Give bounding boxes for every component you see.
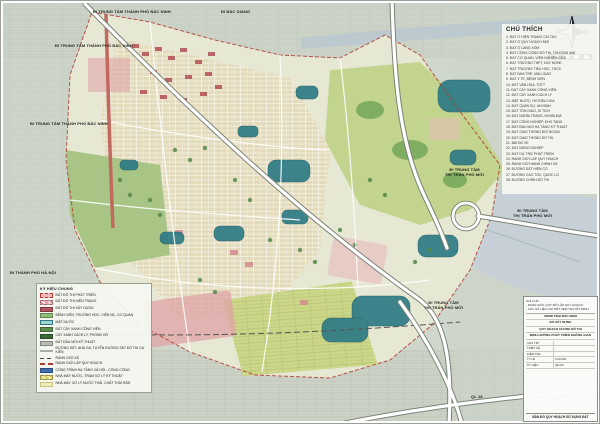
color-swatch — [40, 363, 53, 365]
legend-panel: CHÚ THÍCH 1. ĐẤT Ở HIỆN TRẠNG CẢI TẠO 2.… — [502, 24, 598, 194]
note-line: - CÁC SỐ LIỆU CHI TIẾT XEM THUYẾT MINH — [526, 307, 595, 311]
color-swatch — [40, 334, 53, 339]
color-swatch — [40, 327, 53, 332]
map-key-row: ĐẤT ĐÔ THỊ HIỆN TRẠNG — [40, 300, 148, 305]
map-key-label: ĐẤT ĐÔ THỊ HIỆN TRẠNG — [56, 300, 97, 304]
legend-item: 28. ĐƯỜNG CHÍNH ĐÔ THỊ — [506, 178, 594, 183]
map-direction-label: ĐI BẮC GIANG — [221, 10, 250, 15]
map-key-list: ĐẤT ĐÔ THỊ PHÁT TRIỂN ĐẤT ĐÔ THỊ HIỆN TR… — [40, 293, 148, 387]
map-key-row: NHÀ MÁY XỬ LÝ NƯỚC THẢI, CHẤT THẢI RẮN — [40, 382, 148, 387]
title-block: GHI CHÚ: - RANH GIỚI, QUY MÔ LẬP QUY HOẠ… — [523, 296, 598, 422]
map-direction-label: ĐI TRUNG TÂM THÀNH PHỐ BẮC NINH — [55, 44, 133, 49]
pair-key: TỶ LỆ — [526, 357, 554, 362]
map-key-label: ĐẤT ĐẦU MỐI KỸ THUẬT — [56, 341, 96, 345]
map-key-row: CÔNG TRÌNH HẠ TẦNG XÃ HỘI - CÔNG CỘNG — [40, 368, 148, 373]
map-key-row: MẶT NƯỚC — [40, 320, 148, 325]
map-key-label: ĐẤT ĐÔ THỊ PHÁT TRIỂN — [56, 294, 96, 298]
map-key-label: ĐẤT ĐÔ THỊ XÂY DỰNG — [56, 307, 94, 311]
map-direction-label: ĐI TRUNG TÂM THỊ TRẤN PHỐ MỚI — [445, 168, 484, 178]
drawing-title: BẢN ĐỒ QUY HOẠCH SỬ DỤNG ĐẤT — [526, 413, 595, 419]
map-key-label: CÔNG TRÌNH HẠ TẦNG XÃ HỘI - CÔNG CỘNG — [56, 369, 130, 373]
map-key-row: ĐẤT ĐÔ THỊ XÂY DỰNG — [40, 307, 148, 312]
legend-item-list: 1. ĐẤT Ở HIỆN TRẠNG CẢI TẠO 2. ĐẤT Ở QUY… — [506, 35, 594, 183]
map-direction-label: ĐI TRUNG TÂM THÀNH PHỐ BẮC NINH — [30, 122, 108, 127]
map-direction-label: ĐI TRUNG TÂM THỊ TRẤN PHỐ MỚI — [424, 301, 463, 311]
pair-value — [554, 341, 595, 346]
map-key-row: RANH GIỚI LẬP QUY HOẠCH — [40, 362, 148, 366]
color-swatch — [40, 375, 53, 380]
map-key-panel: KÝ HIỆU CHUNG ĐẤT ĐÔ THỊ PHÁT TRIỂN ĐẤT … — [36, 283, 152, 393]
map-key-row: CÂY XANH CÁCH LY, PHÒNG HỘ — [40, 334, 148, 339]
pair-key: KIỂM TRA — [526, 352, 554, 357]
color-swatch — [40, 368, 53, 373]
color-swatch — [40, 341, 53, 346]
map-key-label: ĐẤT CÂY XANH CÔNG VIÊN — [56, 328, 101, 332]
map-key-label: CÂY XANH CÁCH LY, PHÒNG HỘ — [56, 334, 109, 338]
map-key-label: BỆNH VIỆN, TRƯỜNG HỌC, VIỆN NC, CƠ QUAN — [56, 314, 134, 318]
title-block-pair: KÝ HIỆU QH-03 — [526, 363, 595, 369]
map-key-header: KÝ HIỆU CHUNG — [40, 287, 148, 291]
map-key-label: RANH GIỚI LẬP QUY HOẠCH — [56, 362, 103, 366]
pair-value: 1/10.000 — [554, 357, 595, 362]
title-block-rows: UBND TỈNH BẮC NINH SỞ XÂY DỰNG QUY HOẠCH… — [526, 313, 595, 340]
planning-map-page: ĐI TRUNG TÂM THÀNH PHỐ BẮC NINH ĐI BẮC G… — [0, 0, 600, 424]
map-key-label: ĐƯỜNG SẮT, NHÀ GA; TUYẾN ĐƯỜNG SẮT ĐÔ TH… — [56, 347, 149, 355]
map-key-label: RANH GIỚI XÃ — [56, 357, 79, 361]
pair-key: CHỦ TRÌ — [526, 341, 554, 346]
title-block-notes: GHI CHÚ: - RANH GIỚI, QUY MÔ LẬP QUY HOẠ… — [526, 299, 595, 311]
map-direction-label: ĐI THÀNH PHỐ HÀ NỘI — [10, 271, 56, 276]
map-key-row: ĐẤT CÂY XANH CÔNG VIÊN — [40, 327, 148, 332]
map-key-row: ĐẤT ĐẦU MỐI KỸ THUẬT — [40, 341, 148, 346]
pair-value — [554, 352, 595, 357]
title-block-row: ĐỊNH HƯỚNG PHÁT TRIỂN KHÔNG GIAN — [526, 333, 595, 339]
color-swatch — [40, 293, 53, 298]
pair-value: QH-03 — [554, 363, 595, 368]
map-key-row: ĐẤT ĐÔ THỊ PHÁT TRIỂN — [40, 293, 148, 298]
color-swatch — [40, 300, 53, 305]
color-swatch — [40, 358, 53, 360]
map-key-label: NHÀ MÁY XỬ LÝ NƯỚC THẢI, CHẤT THẢI RẮN — [56, 382, 131, 386]
map-key-row: BỆNH VIỆN, TRƯỜNG HỌC, VIỆN NC, CƠ QUAN — [40, 313, 148, 318]
pair-key: THIẾT KẾ — [526, 346, 554, 351]
map-direction-label: QL.18 — [471, 395, 483, 400]
color-swatch — [40, 382, 53, 387]
map-key-label: NHÀ MÁY NƯỚC, TRẠM XỬ LÝ KỸ THUẬT — [56, 375, 123, 379]
map-key-row: NHÀ MÁY NƯỚC, TRẠM XỬ LÝ KỸ THUẬT — [40, 375, 148, 380]
pair-value — [554, 346, 595, 351]
color-swatch — [40, 307, 53, 312]
color-swatch — [40, 313, 53, 318]
map-direction-label: ĐI TRUNG TÂM THỊ TRẤN PHỐ MỚI — [513, 209, 552, 219]
pair-key: KÝ HIỆU — [526, 363, 554, 368]
map-key-label: MẶT NƯỚC — [56, 321, 75, 325]
color-swatch — [40, 350, 53, 352]
map-key-row: RANH GIỚI XÃ — [40, 357, 148, 361]
map-direction-label: ĐI TRUNG TÂM THÀNH PHỐ BẮC NINH — [93, 10, 171, 15]
color-swatch — [40, 320, 53, 325]
legend-title: CHÚ THÍCH — [506, 27, 594, 33]
map-key-row: ĐƯỜNG SẮT, NHÀ GA; TUYẾN ĐƯỜNG SẮT ĐÔ TH… — [40, 347, 148, 355]
title-block-table: CHỦ TRÌ THIẾT KẾ KIỂM TRA TỶ LỆ 1/10.000 — [526, 341, 595, 369]
